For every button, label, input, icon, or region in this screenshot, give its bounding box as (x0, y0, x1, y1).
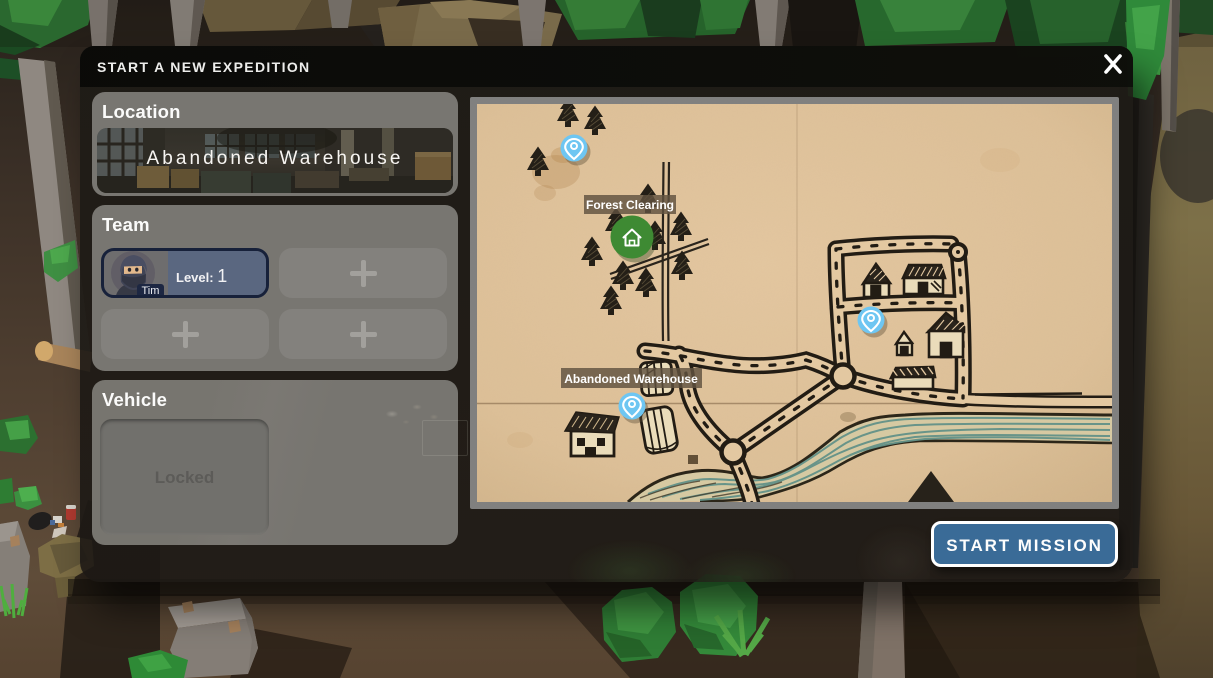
svg-text:Forest Clearing: Forest Clearing (586, 198, 674, 212)
svg-text:Abandoned Warehouse: Abandoned Warehouse (564, 372, 698, 386)
